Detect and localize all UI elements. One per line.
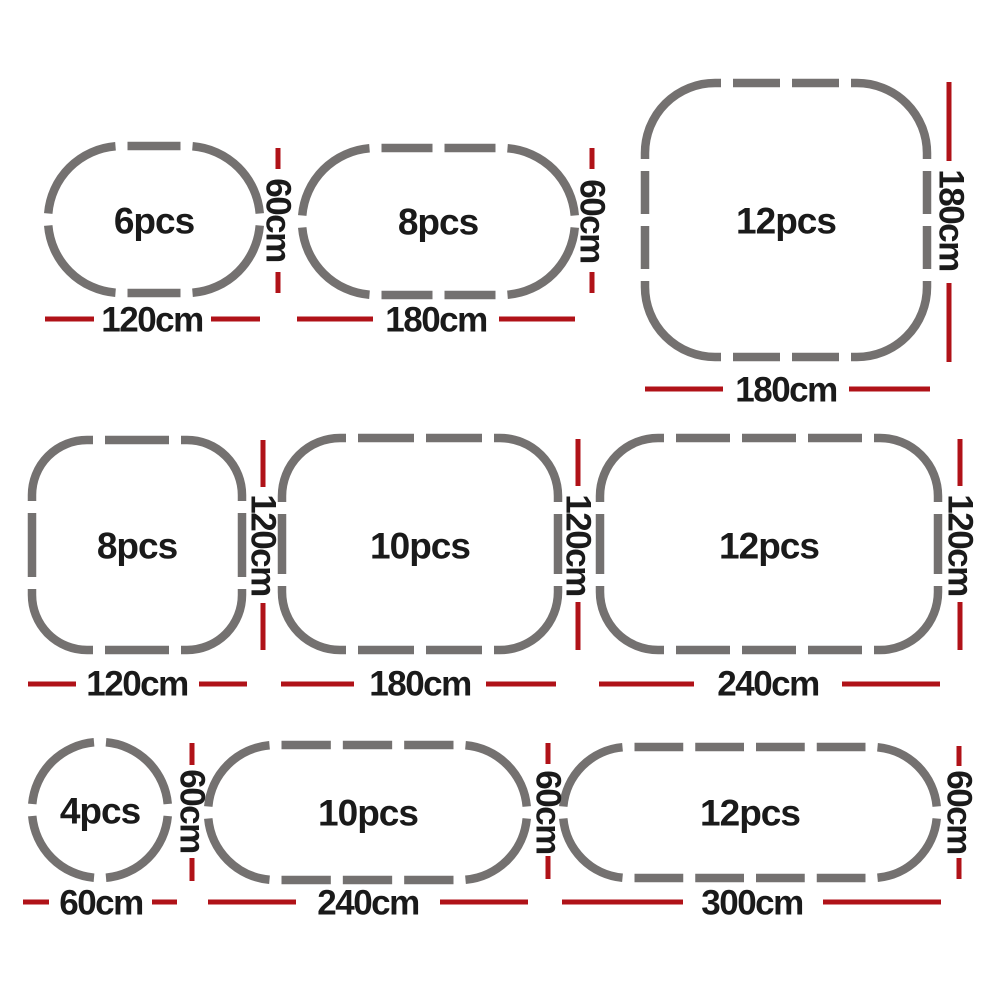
pieces-label: 12pcs [719,528,819,565]
panel-segment [465,818,526,879]
width-dimension-label: 240cm [317,886,418,921]
pieces-label: 10pcs [370,528,470,565]
width-dimension-label: 60cm [59,886,143,921]
width-dimension-label: 180cm [369,667,470,702]
panel-segment [874,438,938,502]
panel-segment [32,589,93,650]
height-dimension-label: 120cm [561,494,596,595]
panel-segment [507,148,574,215]
panel-segment [282,438,346,502]
panel-segment [302,227,369,294]
pieces-label: 4pcs [60,793,140,830]
panel-segment [563,818,622,877]
pieces-label: 10pcs [318,795,418,832]
panel-segment [192,225,259,292]
pieces-label: 8pcs [97,528,177,565]
panel-segment [48,146,115,213]
pieces-label: 6pcs [114,203,194,240]
height-dimension-label: 120cm [246,494,281,595]
panel-outlines-and-dimension-lines [0,0,1000,1000]
configurations-diagram: 6pcs 8pcs 12pcs 8pcs 10pcs 12pcs 4pcs 10… [0,0,1000,1000]
panel-segment [282,586,346,650]
panel-segment [208,745,269,806]
panel-segment [32,440,93,501]
pieces-label: 8pcs [398,204,478,241]
panel-segment [851,83,927,159]
panel-segment [563,747,622,806]
panel-segment [192,146,259,213]
height-dimension-label: 60cm [575,179,610,263]
panel-segment [600,586,664,650]
panel-segment [302,148,369,215]
height-dimension-label: 120cm [943,494,978,595]
width-dimension-label: 120cm [101,303,202,338]
panel-segment [494,438,558,502]
width-dimension-label: 120cm [86,667,187,702]
panel-segment [877,818,936,877]
width-dimension-label: 240cm [717,667,818,702]
panel-segment [208,818,269,879]
panel-segment [494,586,558,650]
width-dimension-label: 180cm [735,373,836,408]
panel-segment [645,83,721,159]
pieces-label: 12pcs [700,795,800,832]
height-dimension-label: 60cm [175,769,210,853]
panel-segment [874,586,938,650]
panel-segment [507,227,574,294]
panel-segment [600,438,664,502]
height-dimension-label: 60cm [531,770,566,854]
panel-segment [645,281,721,357]
width-dimension-label: 180cm [385,303,486,338]
pieces-label: 12pcs [736,203,836,240]
panel-segment [851,281,927,357]
panel-segment [48,225,115,292]
panel-segment [181,440,242,501]
height-dimension-label: 60cm [942,770,977,854]
panel-segment [181,589,242,650]
width-dimension-label: 300cm [701,886,802,921]
height-dimension-label: 180cm [934,169,969,270]
height-dimension-label: 60cm [261,178,296,262]
panel-segment [465,745,526,806]
panel-segment [877,747,936,806]
